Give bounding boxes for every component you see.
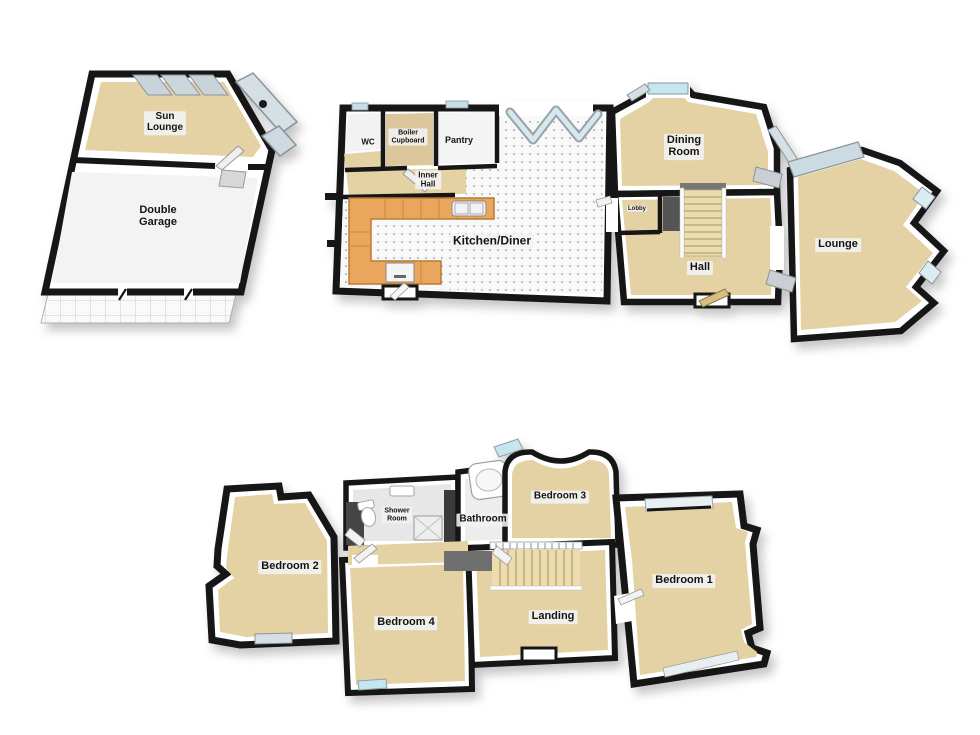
wardrobe-dark bbox=[444, 490, 456, 545]
room-label-bathroom: Bathroom bbox=[456, 514, 509, 527]
room-label-double-garage: Double Garage bbox=[136, 204, 180, 230]
room-label-pantry: Pantry bbox=[442, 135, 476, 147]
staircase-icon bbox=[490, 542, 582, 590]
sink-icon bbox=[390, 486, 414, 496]
room-label-landing: Landing bbox=[529, 610, 578, 624]
sink-icon bbox=[452, 201, 486, 216]
window-panel-icon bbox=[255, 633, 292, 644]
room-label-sun-lounge: Sun Lounge bbox=[144, 111, 186, 135]
room-label-shower-room: Shower Room bbox=[381, 506, 412, 523]
room-label-boiler-cupboard: Boiler Cupboard bbox=[388, 128, 427, 145]
room-label-bedroom-1: Bedroom 1 bbox=[652, 574, 715, 588]
room-label-bedroom-3: Bedroom 3 bbox=[531, 491, 589, 504]
hall-lounge-opening bbox=[770, 226, 784, 270]
room-label-inner-hall: Inner Hall bbox=[415, 170, 441, 189]
driveway-tiles bbox=[41, 294, 236, 323]
room-label-wc: WC bbox=[358, 138, 377, 149]
window-panel-icon bbox=[358, 679, 387, 690]
room-label-lounge: Lounge bbox=[815, 238, 861, 252]
shower-tray-icon bbox=[414, 516, 442, 540]
stairwell-void bbox=[444, 551, 492, 571]
room-label-bedroom-4: Bedroom 4 bbox=[374, 616, 437, 630]
bedroom1-top-recess-window-icon bbox=[645, 496, 713, 511]
landing-bottom-door bbox=[522, 648, 556, 661]
floorplan-page: Sun Lounge Double Garage WC Boiler Cupbo… bbox=[0, 0, 980, 735]
room-label-dining-room: Dining Room bbox=[664, 134, 704, 160]
post-marker bbox=[259, 100, 267, 108]
roof-window-icon bbox=[133, 75, 228, 95]
oven-icon bbox=[386, 263, 414, 282]
door-mat bbox=[219, 170, 246, 188]
room-label-hall: Hall bbox=[687, 261, 713, 275]
room-label-bedroom-2: Bedroom 2 bbox=[258, 560, 321, 574]
staircase-icon bbox=[680, 183, 726, 258]
room-label-lobby: Lobby bbox=[627, 206, 647, 212]
room-label-kitchen-diner: Kitchen/Diner bbox=[450, 234, 534, 249]
dining-bay-window-icon bbox=[648, 83, 688, 94]
kitchen-back-door bbox=[383, 283, 417, 300]
